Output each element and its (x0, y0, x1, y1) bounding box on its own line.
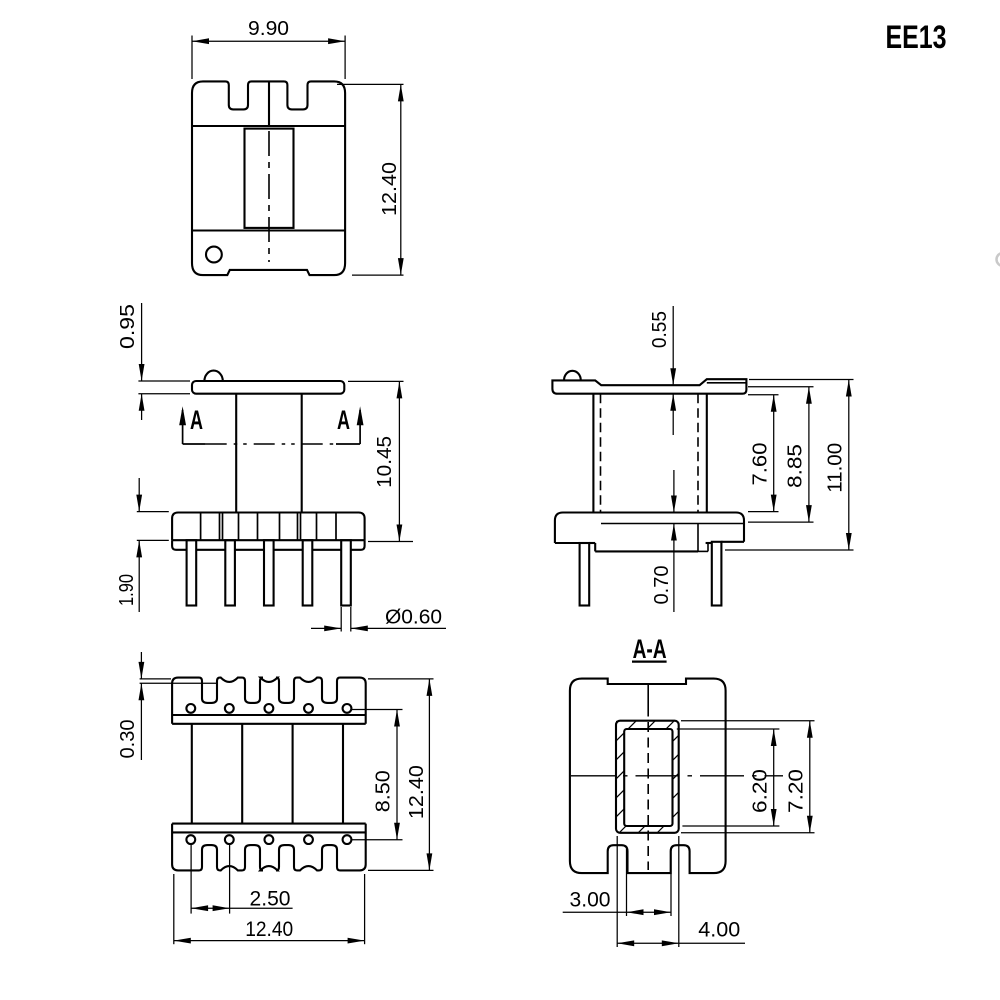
svg-text:A: A (190, 405, 203, 435)
svg-text:12.40: 12.40 (379, 162, 401, 216)
svg-text:0.55: 0.55 (649, 311, 671, 348)
svg-text:1.90: 1.90 (116, 574, 138, 606)
svg-text:8.50: 8.50 (373, 770, 395, 812)
svg-text:12.40: 12.40 (406, 765, 428, 819)
svg-text:7.60: 7.60 (750, 443, 772, 486)
svg-text:6.20: 6.20 (750, 769, 772, 813)
svg-text:A: A (337, 405, 350, 435)
svg-text:0.95: 0.95 (117, 304, 139, 349)
svg-text:4.00: 4.00 (698, 919, 740, 942)
svg-text:EE13: EE13 (886, 19, 947, 55)
svg-text:8.85: 8.85 (785, 444, 807, 488)
svg-text:9.90: 9.90 (248, 18, 289, 40)
svg-text:Ø0.60: Ø0.60 (385, 607, 442, 629)
svg-text:10.45: 10.45 (374, 436, 396, 488)
svg-text:11.00: 11.00 (825, 443, 847, 493)
svg-text:0.70: 0.70 (651, 566, 673, 605)
svg-text:2.50: 2.50 (250, 888, 291, 911)
svg-text:0.30: 0.30 (117, 720, 139, 759)
svg-text:7.20: 7.20 (786, 769, 808, 813)
svg-text:12.40: 12.40 (245, 918, 293, 941)
svg-text:3.00: 3.00 (570, 889, 611, 912)
svg-text:A-A: A-A (633, 634, 667, 664)
